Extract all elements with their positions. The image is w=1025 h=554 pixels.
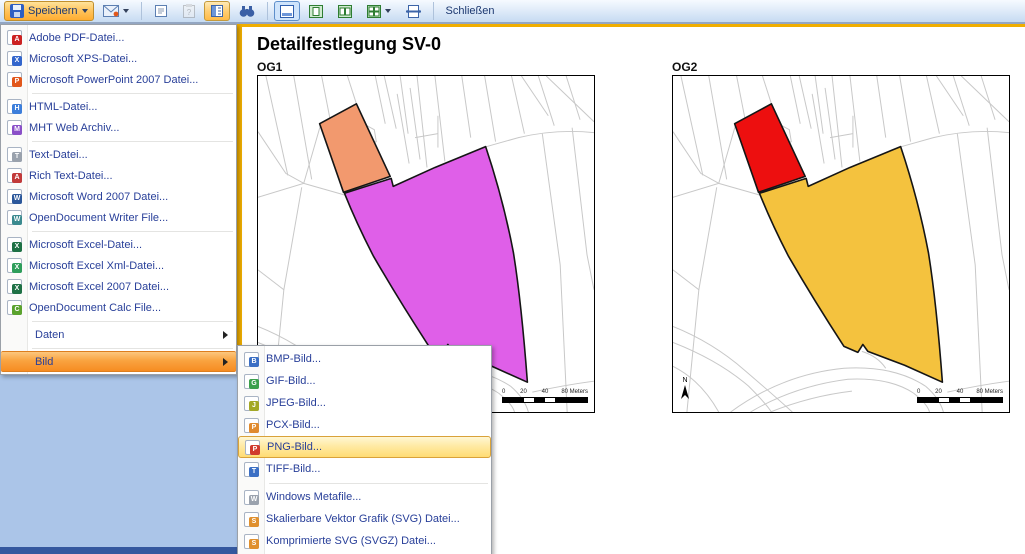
send-dropdown-caret-icon[interactable] bbox=[123, 9, 129, 13]
menu-item-label: Microsoft Excel-Datei... bbox=[29, 239, 142, 251]
menu-item-label: Adobe PDF-Datei... bbox=[29, 32, 124, 44]
menu-item-label: OpenDocument Calc File... bbox=[29, 302, 161, 314]
svg-text:?: ? bbox=[186, 8, 191, 17]
scale-bar-segments bbox=[917, 397, 1003, 403]
save-floppy-icon bbox=[10, 4, 24, 18]
menu-item-label: PNG-Bild... bbox=[267, 441, 322, 453]
north-arrow-icon bbox=[678, 384, 692, 400]
text-file-icon: T bbox=[7, 147, 22, 162]
close-button[interactable]: Schließen bbox=[440, 5, 501, 17]
scale-bar: 0 20 40 80 Meters bbox=[917, 389, 1003, 405]
view-two-pages-button[interactable] bbox=[332, 1, 358, 21]
svg-file-icon: S bbox=[244, 512, 259, 527]
page-settings-button[interactable] bbox=[148, 1, 174, 21]
menu-item-gif[interactable]: GGIF-Bild... bbox=[238, 370, 491, 392]
pcx-file-icon: P bbox=[244, 418, 259, 433]
scale-tick-20: 20 bbox=[935, 389, 942, 395]
submenu-arrow-icon bbox=[223, 331, 228, 339]
menu-item-label: BMP-Bild... bbox=[266, 353, 321, 365]
powerpoint-file-icon: P bbox=[7, 72, 22, 87]
tiff-file-icon: T bbox=[244, 462, 259, 477]
fit-width-icon bbox=[406, 5, 421, 18]
menu-item-label: Komprimierte SVG (SVGZ) Datei... bbox=[266, 535, 436, 547]
menu-item-html[interactable]: HHTML-Datei... bbox=[1, 96, 236, 117]
scale-bar-segments bbox=[502, 397, 588, 403]
map-og2-svg bbox=[673, 76, 1009, 412]
mht-file-icon: M bbox=[7, 120, 22, 135]
excel-xml-file-icon: X bbox=[7, 258, 22, 273]
save-dropdown-menu: AAdobe PDF-Datei...XMicrosoft XPS-Datei.… bbox=[0, 24, 237, 375]
sidebar-toggle-button[interactable] bbox=[204, 1, 230, 21]
full-page-view-icon bbox=[280, 5, 294, 18]
north-arrow: N bbox=[678, 377, 692, 405]
scale-tick-0: 0 bbox=[502, 389, 505, 395]
two-page-view-icon bbox=[338, 5, 352, 18]
menu-item-ms-excel-2007[interactable]: XMicrosoft Excel 2007 Datei... bbox=[1, 276, 236, 297]
menu-item-ods-calc[interactable]: COpenDocument Calc File... bbox=[1, 297, 236, 318]
menu-item-mht[interactable]: MMHT Web Archiv... bbox=[1, 117, 236, 138]
menu-item-odt-writer[interactable]: WOpenDocument Writer File... bbox=[1, 207, 236, 228]
one-page-view-icon bbox=[309, 5, 323, 18]
find-button[interactable] bbox=[233, 1, 261, 21]
png-file-icon: P bbox=[245, 440, 260, 455]
menu-item-label: Microsoft Word 2007 Datei... bbox=[29, 191, 168, 203]
toolbar-separator bbox=[267, 2, 268, 20]
scale-tick-40: 40 bbox=[542, 389, 549, 395]
menu-item-label: HTML-Datei... bbox=[29, 101, 97, 113]
menu-item-label: Microsoft Excel Xml-Datei... bbox=[29, 260, 164, 272]
xps-file-icon: X bbox=[7, 51, 22, 66]
menu-item-label: MHT Web Archiv... bbox=[29, 122, 119, 134]
bmp-file-icon: B bbox=[244, 352, 259, 367]
page-settings-icon bbox=[154, 4, 168, 18]
gif-file-icon: G bbox=[244, 374, 259, 389]
pdf-file-icon: A bbox=[7, 30, 22, 45]
menu-item-jpeg[interactable]: JJPEG-Bild... bbox=[238, 392, 491, 414]
panel-og1-label: OG1 bbox=[257, 60, 595, 74]
envelope-icon bbox=[103, 5, 119, 17]
menu-item-label: PCX-Bild... bbox=[266, 419, 320, 431]
menu-item-label: Microsoft PowerPoint 2007 Datei... bbox=[29, 74, 198, 86]
clipboard-question-icon: ? bbox=[183, 4, 195, 18]
menu-item-pcx[interactable]: PPCX-Bild... bbox=[238, 414, 491, 436]
send-mail-button[interactable] bbox=[97, 1, 135, 21]
map-og2: N 0 20 40 80 Meters bbox=[672, 75, 1010, 413]
menu-item-label: Bild bbox=[35, 356, 53, 368]
menu-item-tiff[interactable]: TTIFF-Bild... bbox=[238, 458, 491, 480]
menu-item-label: Text-Datei... bbox=[29, 149, 88, 161]
scale-bar: 0 20 40 80 Meters bbox=[502, 389, 588, 405]
menu-item-bmp[interactable]: BBMP-Bild... bbox=[238, 348, 491, 370]
view-one-page-button[interactable] bbox=[303, 1, 329, 21]
menu-item-label: Microsoft Excel 2007 Datei... bbox=[29, 281, 169, 293]
menu-item-svg[interactable]: SSkalierbare Vektor Grafik (SVG) Datei..… bbox=[238, 508, 491, 530]
preview-window: Speichern ? bbox=[0, 0, 1025, 554]
menu-item-label: Skalierbare Vektor Grafik (SVG) Datei... bbox=[266, 513, 460, 525]
rtf-file-icon: A bbox=[7, 168, 22, 183]
fit-width-button[interactable] bbox=[400, 1, 427, 21]
menu-item-ms-excel-xml[interactable]: XMicrosoft Excel Xml-Datei... bbox=[1, 255, 236, 276]
menu-item-png[interactable]: PPNG-Bild... bbox=[238, 436, 491, 458]
excel-2007-file-icon: X bbox=[7, 279, 22, 294]
multi-page-dropdown-caret-icon[interactable] bbox=[385, 9, 391, 13]
menu-item-label: OpenDocument Writer File... bbox=[29, 212, 168, 224]
clipboard-help-button: ? bbox=[177, 1, 201, 21]
menu-item-label: Daten bbox=[35, 329, 64, 341]
save-button[interactable]: Speichern bbox=[4, 1, 94, 21]
menu-item-label: Microsoft XPS-Datei... bbox=[29, 53, 137, 65]
menu-item-rich-text[interactable]: ARich Text-Datei... bbox=[1, 165, 236, 186]
menu-item-text[interactable]: TText-Datei... bbox=[1, 144, 236, 165]
scale-tick-80: 80 Meters bbox=[561, 389, 588, 395]
menu-item-ms-word-2007[interactable]: WMicrosoft Word 2007 Datei... bbox=[1, 186, 236, 207]
map-panel-og2: OG2 N 0 20 40 80 Meters bbox=[672, 60, 1010, 413]
menu-item-label: Rich Text-Datei... bbox=[29, 170, 113, 182]
binoculars-icon bbox=[239, 5, 255, 18]
save-button-label: Speichern bbox=[28, 5, 78, 17]
menu-item-ms-powerpoint-2007[interactable]: PMicrosoft PowerPoint 2007 Datei... bbox=[1, 69, 236, 90]
toolbar-separator bbox=[433, 2, 434, 20]
view-full-page-button[interactable] bbox=[274, 1, 300, 21]
menu-item-bild[interactable]: Bild bbox=[1, 351, 236, 372]
scale-tick-40: 40 bbox=[957, 389, 964, 395]
scale-tick-20: 20 bbox=[520, 389, 527, 395]
toolbar-separator bbox=[141, 2, 142, 20]
panel-og2-label: OG2 bbox=[672, 60, 1010, 74]
toolbar: Speichern ? bbox=[0, 0, 1025, 24]
bild-submenu: BBMP-Bild...GGIF-Bild...JJPEG-Bild...PPC… bbox=[237, 345, 492, 554]
ods-file-icon: C bbox=[7, 300, 22, 315]
menu-item-daten[interactable]: Daten bbox=[1, 324, 236, 345]
view-multi-page-button[interactable] bbox=[361, 1, 397, 21]
menu-item-adobe-pdf[interactable]: AAdobe PDF-Datei... bbox=[1, 27, 236, 48]
wmf-file-icon: W bbox=[244, 490, 259, 505]
excel-file-icon: X bbox=[7, 237, 22, 252]
submenu-arrow-icon bbox=[223, 358, 228, 366]
menu-item-label: Windows Metafile... bbox=[266, 491, 361, 503]
menu-item-label: GIF-Bild... bbox=[266, 375, 316, 387]
scale-tick-80: 80 Meters bbox=[976, 389, 1003, 395]
menu-item-ms-xps[interactable]: XMicrosoft XPS-Datei... bbox=[1, 48, 236, 69]
menu-item-label: TIFF-Bild... bbox=[266, 463, 320, 475]
menu-item-label: JPEG-Bild... bbox=[266, 397, 326, 409]
svgz-file-icon: S bbox=[244, 534, 259, 549]
scale-tick-0: 0 bbox=[917, 389, 920, 395]
menu-item-ms-excel[interactable]: XMicrosoft Excel-Datei... bbox=[1, 234, 236, 255]
word-file-icon: W bbox=[7, 189, 22, 204]
jpeg-file-icon: J bbox=[244, 396, 259, 411]
menu-item-svgz[interactable]: SKomprimierte SVG (SVGZ) Datei... bbox=[238, 530, 491, 552]
menu-item-wmf[interactable]: WWindows Metafile... bbox=[238, 486, 491, 508]
odt-file-icon: W bbox=[7, 210, 22, 225]
save-dropdown-caret-icon[interactable] bbox=[82, 9, 88, 13]
page-title: Detailfestlegung SV-0 bbox=[257, 34, 441, 55]
sidebar-toggle-icon bbox=[210, 4, 224, 18]
html-file-icon: H bbox=[7, 99, 22, 114]
multi-page-view-icon bbox=[367, 5, 381, 18]
